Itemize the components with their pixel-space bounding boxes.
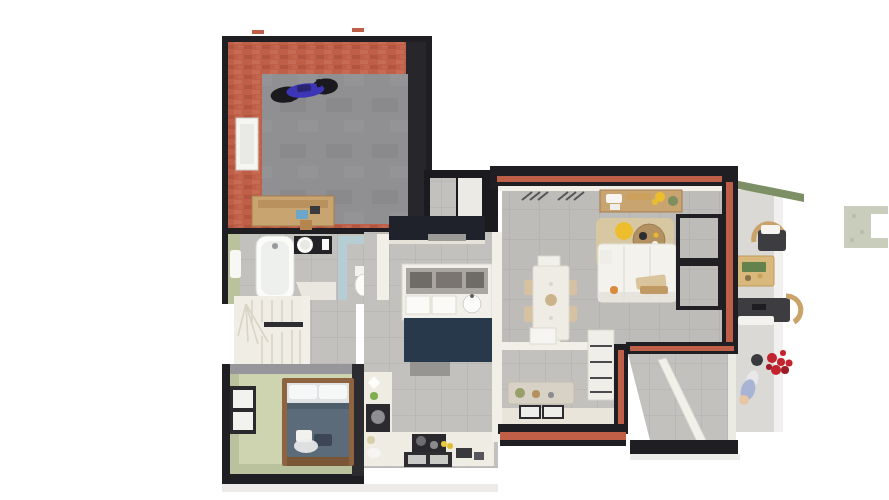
- kitchen-island: [402, 264, 492, 320]
- brick-band-bottom: [500, 432, 626, 440]
- living-dining-room: [490, 166, 738, 350]
- hallway-floor: [310, 300, 356, 374]
- garage-window: [236, 118, 258, 170]
- bedroom: [222, 364, 364, 484]
- towel: [230, 250, 241, 278]
- open-door: [530, 328, 556, 344]
- outdoor-chair: [754, 224, 786, 251]
- workbench: [252, 196, 334, 230]
- plant: [668, 196, 678, 206]
- cooktop: [412, 434, 446, 452]
- pouf: [615, 222, 633, 240]
- handrail: [264, 322, 306, 327]
- pillow: [289, 385, 317, 399]
- double-bed: [282, 378, 354, 466]
- bathtub: [256, 236, 294, 300]
- outdoor-table: [736, 256, 774, 286]
- shadow: [630, 454, 740, 460]
- doormat: [543, 406, 563, 418]
- island-base: [404, 318, 492, 362]
- bedroom-window: [230, 386, 256, 434]
- brick-band-top: [497, 176, 731, 182]
- kitchen: [364, 216, 502, 468]
- sideboard: [600, 190, 682, 212]
- garage: [222, 28, 432, 234]
- doormat: [520, 406, 540, 418]
- floorplan-render: [0, 0, 889, 500]
- sofa: [598, 244, 676, 302]
- grass-patch: [844, 206, 888, 248]
- staircase: [234, 296, 356, 374]
- kitchen-mat: [410, 362, 450, 376]
- vanity-sink: [294, 236, 332, 254]
- entry-bench: [508, 382, 574, 404]
- entry-cabinet: [588, 330, 614, 400]
- double-sink: [404, 452, 452, 467]
- shadow: [222, 484, 498, 492]
- toaster: [456, 448, 472, 458]
- pillow: [319, 385, 347, 399]
- floorplan-svg: [0, 0, 889, 500]
- brick-band-right: [726, 182, 733, 344]
